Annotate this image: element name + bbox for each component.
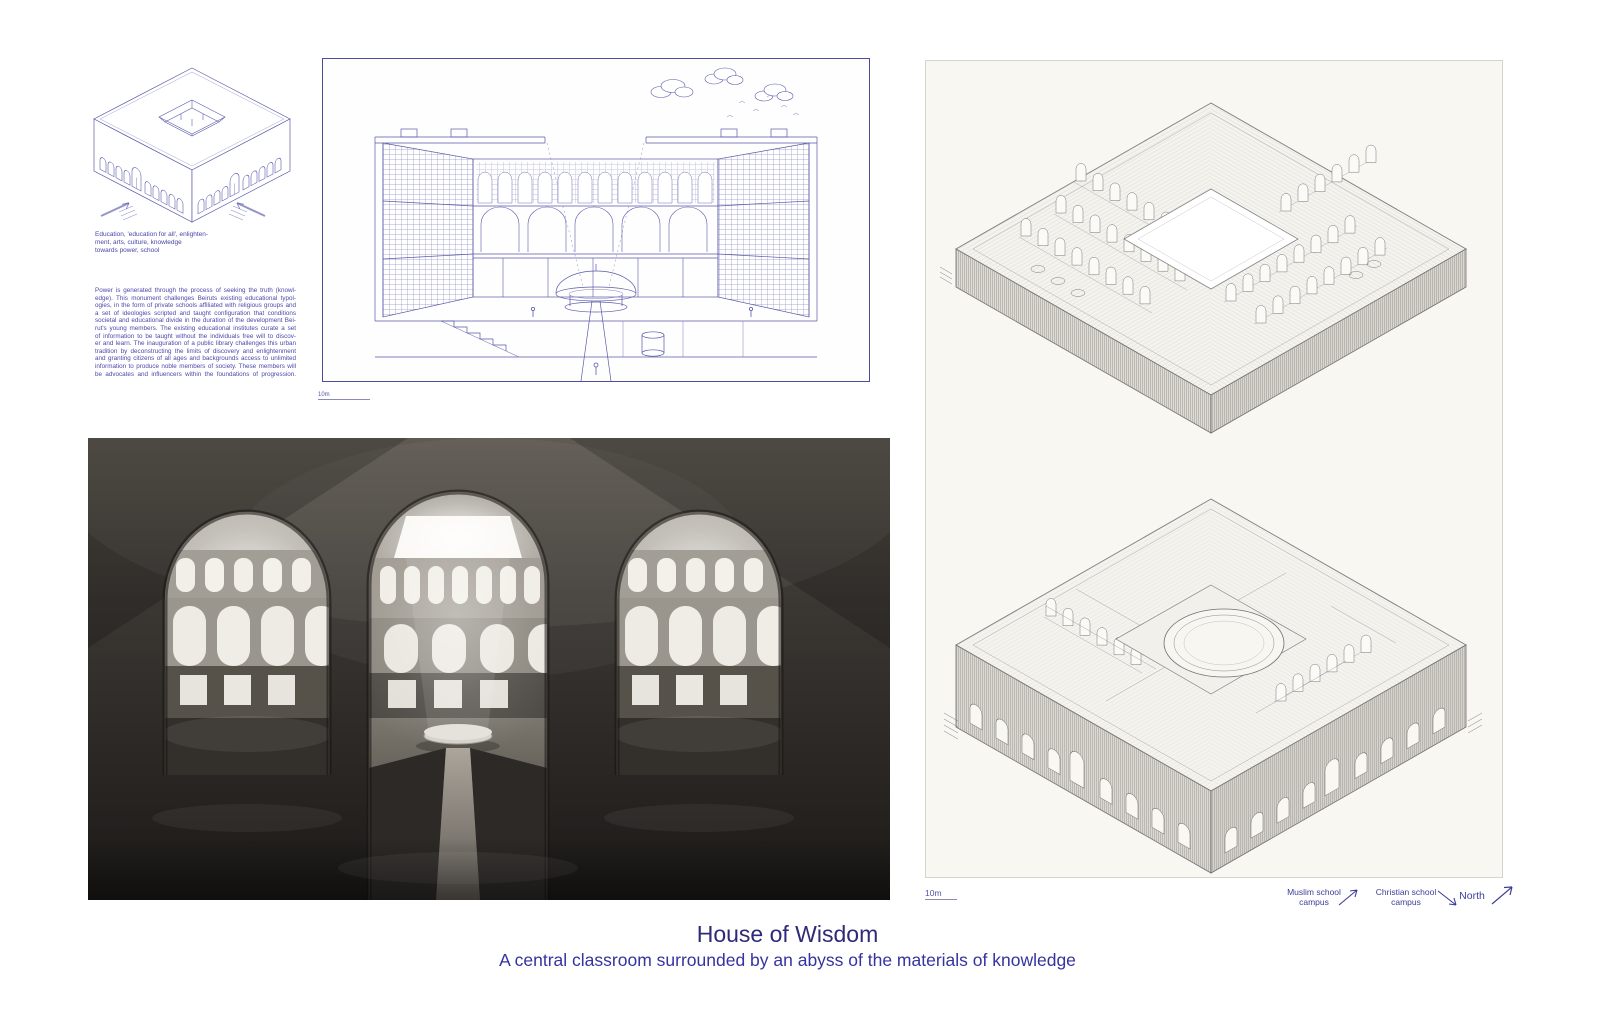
section-scale-bar: 10m — [318, 391, 370, 400]
text-line: towards power, school — [95, 247, 265, 255]
text-line: societal and educational divide in the d… — [95, 317, 296, 325]
text-line: information to produce noble members of … — [95, 363, 296, 371]
text-line: rut's young members. The existing educat… — [95, 325, 296, 333]
text-line: ogies, in the form of private schools af… — [95, 302, 296, 310]
north-label: North — [1452, 890, 1492, 902]
text-line: of information to be taught without the … — [95, 333, 296, 341]
upper-level-axonometric-drawing — [940, 103, 1466, 433]
text-line: a set of ideologies scripted and taught … — [95, 310, 296, 318]
north-arrow-icon — [1488, 882, 1518, 908]
section-perspective-drawing — [323, 59, 869, 381]
scale-label: 10m — [925, 888, 942, 898]
text-line: ment, arts, culture, knowledge — [95, 239, 265, 247]
text-line: Power is generated through the process o… — [95, 287, 296, 295]
text-line: be advocates and influencers within the … — [95, 371, 296, 379]
text-line: edge). This monument challenges Beiruts … — [95, 295, 296, 303]
footer: House of Wisdom A central classroom surr… — [0, 920, 1575, 971]
text-line: Education, 'education for all', enlighte… — [95, 231, 265, 239]
concept-paragraph: Power is generated through the process o… — [95, 287, 296, 378]
section-drawing-frame — [322, 58, 870, 382]
axonometric-panel — [925, 60, 1503, 878]
scale-label: 10m — [318, 392, 330, 398]
presentation-board: Education, 'education for all', enlighte… — [0, 0, 1600, 1029]
text-line: and granting citizens of all ages and ba… — [95, 355, 296, 363]
north-east-arrow-icon — [1336, 886, 1362, 908]
text-line: er and learn. The inauguration of a publ… — [95, 340, 296, 348]
board-title: House of Wisdom — [0, 920, 1575, 948]
concept-caption: Education, 'education for all', enlighte… — [95, 231, 265, 255]
concept-isometric-drawing — [85, 62, 300, 230]
board-subtitle: A central classroom surrounded by an aby… — [0, 949, 1575, 971]
text-line: tradition by deconstructing the limits o… — [95, 348, 296, 356]
interior-render-image — [88, 438, 890, 900]
axon-scale-bar: 10m — [925, 888, 957, 900]
building-axonometric-drawing — [944, 499, 1482, 873]
